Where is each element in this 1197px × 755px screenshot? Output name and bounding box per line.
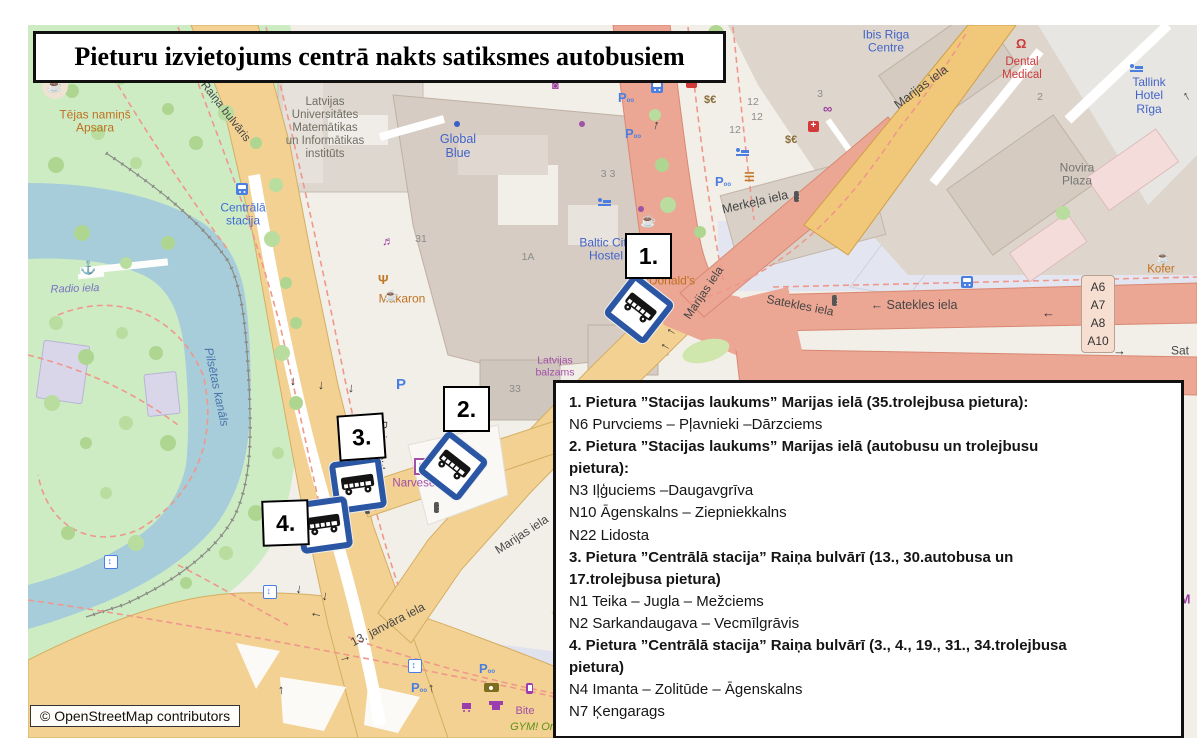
legend-box: 1. Pietura ”Stacijas laukums” Marijas ie… [553, 380, 1184, 738]
parking-bike-icon: P [625, 127, 641, 140]
cafe-cup-icon: ☕ [640, 214, 656, 227]
phone-shop-icon [526, 683, 533, 694]
bus-pictogram-icon [340, 472, 377, 499]
bus-stop-icon [961, 276, 973, 288]
stop-number-label: 2. [443, 386, 490, 432]
stop-number-label: 1. [625, 233, 672, 279]
legend-route: N22 Lidosta [569, 525, 1168, 547]
music-venue-icon: ♬ [382, 235, 394, 247]
currency-exchange-icon: $€ [785, 135, 797, 146]
currency-exchange-icon: $€ [704, 95, 716, 106]
poi-dot-icon [579, 121, 585, 127]
route-ref: A6 [1091, 278, 1106, 296]
bed-icon [736, 147, 749, 156]
elevator-icon [104, 555, 118, 569]
legend-route: N2 Sarkandaugava – Vecmīlgrāvis [569, 613, 1168, 635]
bed-icon [1130, 63, 1143, 72]
clothes-shop-icon [492, 701, 500, 710]
dentist-icon: Ω [1016, 37, 1026, 50]
route-ref: A10 [1087, 332, 1108, 350]
bus-pictogram-icon [306, 512, 343, 539]
poi-dot-icon [638, 206, 644, 212]
stop-number-label: 3. [336, 412, 386, 461]
legend-stop-3-header: 3. Pietura ”Centrālā stacija” Raiņa bulv… [569, 547, 1168, 591]
legend-stop-2-header: 2. Pietura ”Stacijas laukums” Marijas ie… [569, 436, 1168, 480]
route-ref: A7 [1091, 296, 1106, 314]
bus-pictogram-icon [619, 290, 659, 328]
legend-route: N1 Teika – Jugla – Mežciems [569, 591, 1168, 613]
optician-shop-icon [484, 683, 499, 692]
fastfood-icon: ☰ [744, 171, 755, 183]
elevator-icon [408, 659, 422, 673]
legend-route: N7 Ķengarags [569, 701, 1168, 723]
bus-stop-icon [236, 183, 248, 195]
parking-bike-icon: P [715, 175, 731, 188]
parking-bike-icon: P [479, 662, 495, 675]
cafe-cup-icon: ☕ [1156, 253, 1170, 264]
parking-icon: P [396, 377, 406, 392]
legend-route: N6 Purvciems – Pļavnieki –Dārzciems [569, 414, 1168, 436]
elevator-icon [263, 585, 277, 599]
pharmacy-icon [808, 121, 819, 132]
legend-route: N10 Āgenskalns – Ziepniekkalns [569, 502, 1168, 524]
legend-route: N3 Iļģuciems –Daugavgrīva [569, 480, 1168, 502]
parking-bike-icon: P [411, 681, 427, 694]
cafe-cup-icon: ☕ [384, 291, 398, 302]
anchor-icon: ⚓ [80, 261, 96, 274]
map-title: Pieturu izvietojums centrā nakts satiksm… [33, 31, 726, 83]
traffic-light-icon [832, 295, 837, 306]
bus-pictogram-icon [433, 447, 473, 485]
legend-route: N4 Imanta – Zolitūde – Āgenskalns [569, 679, 1168, 701]
traffic-light-icon [794, 191, 799, 202]
restaurant-icon: Ψ [378, 273, 389, 286]
supermarket-icon [462, 703, 471, 709]
poi-dot-icon [454, 121, 460, 127]
legend-stop-1-header: 1. Pietura ”Stacijas laukums” Marijas ie… [569, 392, 1168, 414]
optician-icon: ∞ [823, 102, 832, 115]
traffic-light-icon [434, 502, 439, 513]
map-canvas[interactable]: A6 A7 A8 A10 Pieturu izvietojums centrā … [28, 25, 1197, 738]
stop-number-label: 4. [261, 499, 310, 547]
legend-stop-4-header: 4. Pietura ”Centrālā stacija” Raiņa bulv… [569, 635, 1168, 679]
route-ref: A8 [1091, 314, 1106, 332]
parking-bike-icon: P [618, 91, 634, 104]
osm-attribution: © OpenStreetMap contributors [30, 705, 240, 727]
bed-icon [598, 197, 611, 206]
route-shield: A6 A7 A8 A10 [1081, 275, 1115, 353]
